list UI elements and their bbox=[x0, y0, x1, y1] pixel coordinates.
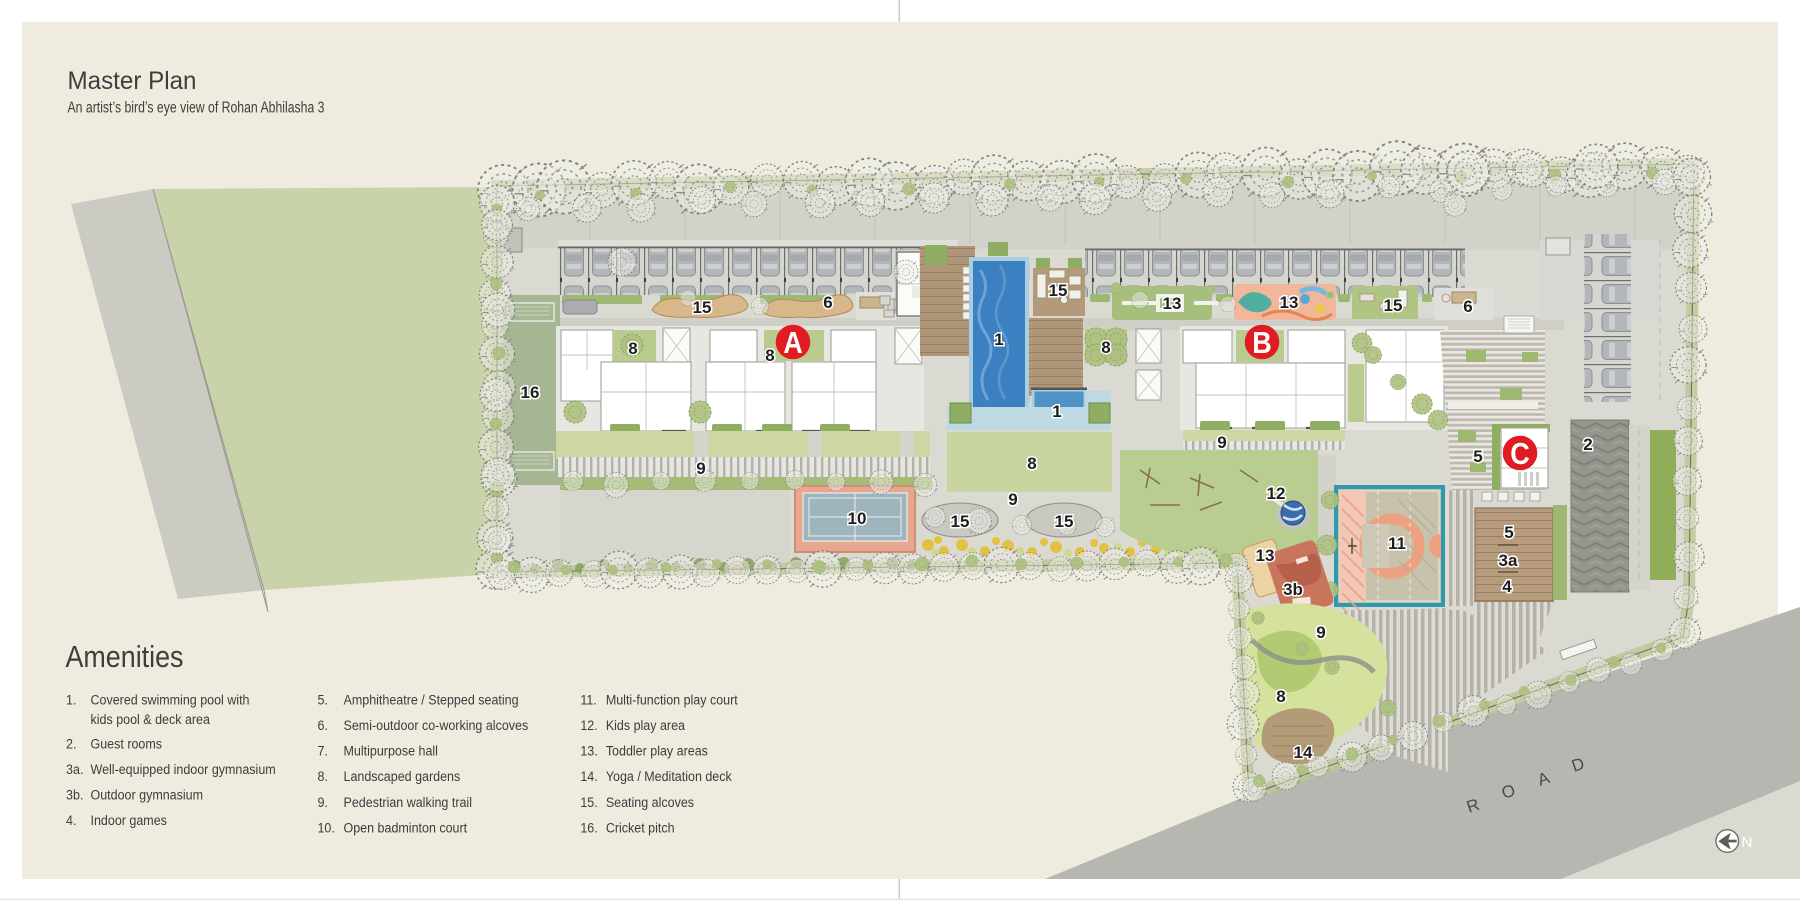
svg-text:6.: 6. bbox=[317, 718, 327, 734]
svg-text:3a: 3a bbox=[1499, 551, 1518, 570]
svg-text:6: 6 bbox=[823, 293, 832, 312]
svg-text:1: 1 bbox=[1052, 402, 1061, 421]
svg-text:16.: 16. bbox=[580, 820, 597, 836]
svg-text:N: N bbox=[1742, 834, 1753, 851]
svg-text:9: 9 bbox=[1008, 490, 1017, 509]
svg-text:14.: 14. bbox=[580, 769, 597, 785]
svg-text:11: 11 bbox=[1388, 534, 1406, 553]
svg-text:C: C bbox=[1510, 436, 1530, 471]
svg-text:Yoga / Meditation deck: Yoga / Meditation deck bbox=[606, 769, 732, 785]
svg-text:5.: 5. bbox=[317, 692, 327, 708]
svg-text:4: 4 bbox=[1502, 577, 1512, 596]
svg-text:Master Plan: Master Plan bbox=[68, 67, 197, 95]
svg-text:8: 8 bbox=[1027, 454, 1036, 473]
svg-text:15: 15 bbox=[1049, 281, 1068, 300]
svg-text:Multipurpose hall: Multipurpose hall bbox=[344, 743, 439, 759]
svg-text:Toddler play areas: Toddler play areas bbox=[606, 743, 709, 759]
svg-text:13: 13 bbox=[1163, 294, 1182, 313]
svg-text:10.: 10. bbox=[317, 820, 334, 836]
svg-text:12: 12 bbox=[1267, 484, 1286, 503]
svg-text:Indoor games: Indoor games bbox=[91, 813, 168, 829]
svg-text:8: 8 bbox=[1276, 687, 1285, 706]
svg-text:9.: 9. bbox=[317, 794, 327, 810]
svg-text:2: 2 bbox=[1583, 435, 1592, 454]
svg-text:6: 6 bbox=[1463, 297, 1472, 316]
svg-text:14: 14 bbox=[1294, 743, 1313, 762]
svg-text:15: 15 bbox=[693, 298, 712, 317]
svg-text:13.: 13. bbox=[580, 743, 597, 759]
svg-text:2.: 2. bbox=[66, 736, 76, 752]
svg-text:3a.: 3a. bbox=[66, 762, 83, 778]
svg-text:3b: 3b bbox=[1283, 580, 1303, 599]
svg-text:Multi-function play court: Multi-function play court bbox=[606, 692, 738, 708]
svg-text:Guest rooms: Guest rooms bbox=[91, 736, 163, 752]
svg-text:Kids play area: Kids play area bbox=[606, 718, 686, 734]
svg-text:13: 13 bbox=[1280, 293, 1299, 312]
svg-text:Semi-outdoor co-working alcove: Semi-outdoor co-working alcoves bbox=[344, 718, 529, 734]
svg-text:10: 10 bbox=[848, 509, 867, 528]
svg-text:Covered swimming pool with: Covered swimming pool with bbox=[91, 692, 250, 708]
svg-text:Well-equipped indoor gymnasium: Well-equipped indoor gymnasium bbox=[91, 762, 276, 778]
svg-text:kids pool & deck area: kids pool & deck area bbox=[91, 711, 211, 727]
svg-text:An artist’s bird’s eye view of: An artist’s bird’s eye view of Rohan Abh… bbox=[68, 100, 325, 117]
svg-text:1.: 1. bbox=[66, 692, 76, 708]
svg-text:Amenities: Amenities bbox=[66, 640, 184, 674]
svg-text:15: 15 bbox=[1384, 296, 1403, 315]
svg-text:Outdoor gymnasium: Outdoor gymnasium bbox=[91, 787, 204, 803]
svg-text:15: 15 bbox=[1055, 512, 1074, 531]
svg-text:12.: 12. bbox=[580, 718, 597, 734]
svg-text:Seating alcoves: Seating alcoves bbox=[606, 794, 695, 810]
svg-text:9: 9 bbox=[1316, 623, 1325, 642]
svg-text:16: 16 bbox=[521, 383, 540, 402]
svg-text:11.: 11. bbox=[580, 692, 596, 708]
svg-text:5: 5 bbox=[1504, 523, 1513, 542]
svg-text:13: 13 bbox=[1256, 546, 1275, 565]
svg-text:8.: 8. bbox=[317, 769, 327, 785]
svg-text:3b.: 3b. bbox=[66, 787, 83, 803]
svg-text:Amphitheatre / Stepped seating: Amphitheatre / Stepped seating bbox=[344, 692, 519, 708]
svg-text:15.: 15. bbox=[580, 794, 597, 810]
svg-text:5: 5 bbox=[1473, 447, 1482, 466]
svg-text:15: 15 bbox=[951, 512, 970, 531]
svg-text:4.: 4. bbox=[66, 813, 76, 829]
svg-text:Landscaped gardens: Landscaped gardens bbox=[344, 769, 461, 785]
svg-text:8: 8 bbox=[765, 346, 774, 365]
svg-text:7.: 7. bbox=[317, 743, 327, 759]
svg-text:8: 8 bbox=[1101, 338, 1110, 357]
svg-text:Cricket pitch: Cricket pitch bbox=[606, 820, 675, 836]
svg-text:A: A bbox=[783, 325, 803, 360]
svg-text:9: 9 bbox=[1217, 433, 1226, 452]
svg-text:8: 8 bbox=[628, 339, 637, 358]
svg-text:9: 9 bbox=[696, 459, 705, 478]
svg-text:1: 1 bbox=[994, 330, 1003, 349]
svg-text:Open badminton court: Open badminton court bbox=[344, 820, 468, 836]
svg-text:B: B bbox=[1252, 325, 1272, 360]
svg-text:Pedestrian walking trail: Pedestrian walking trail bbox=[344, 794, 473, 810]
